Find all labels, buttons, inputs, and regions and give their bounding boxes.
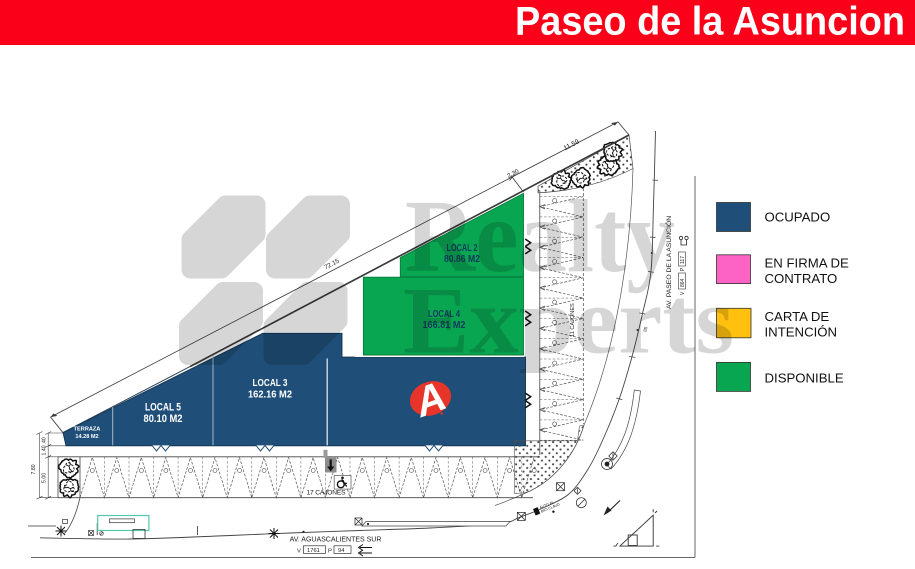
svg-text:Experts: Experts <box>403 268 734 374</box>
